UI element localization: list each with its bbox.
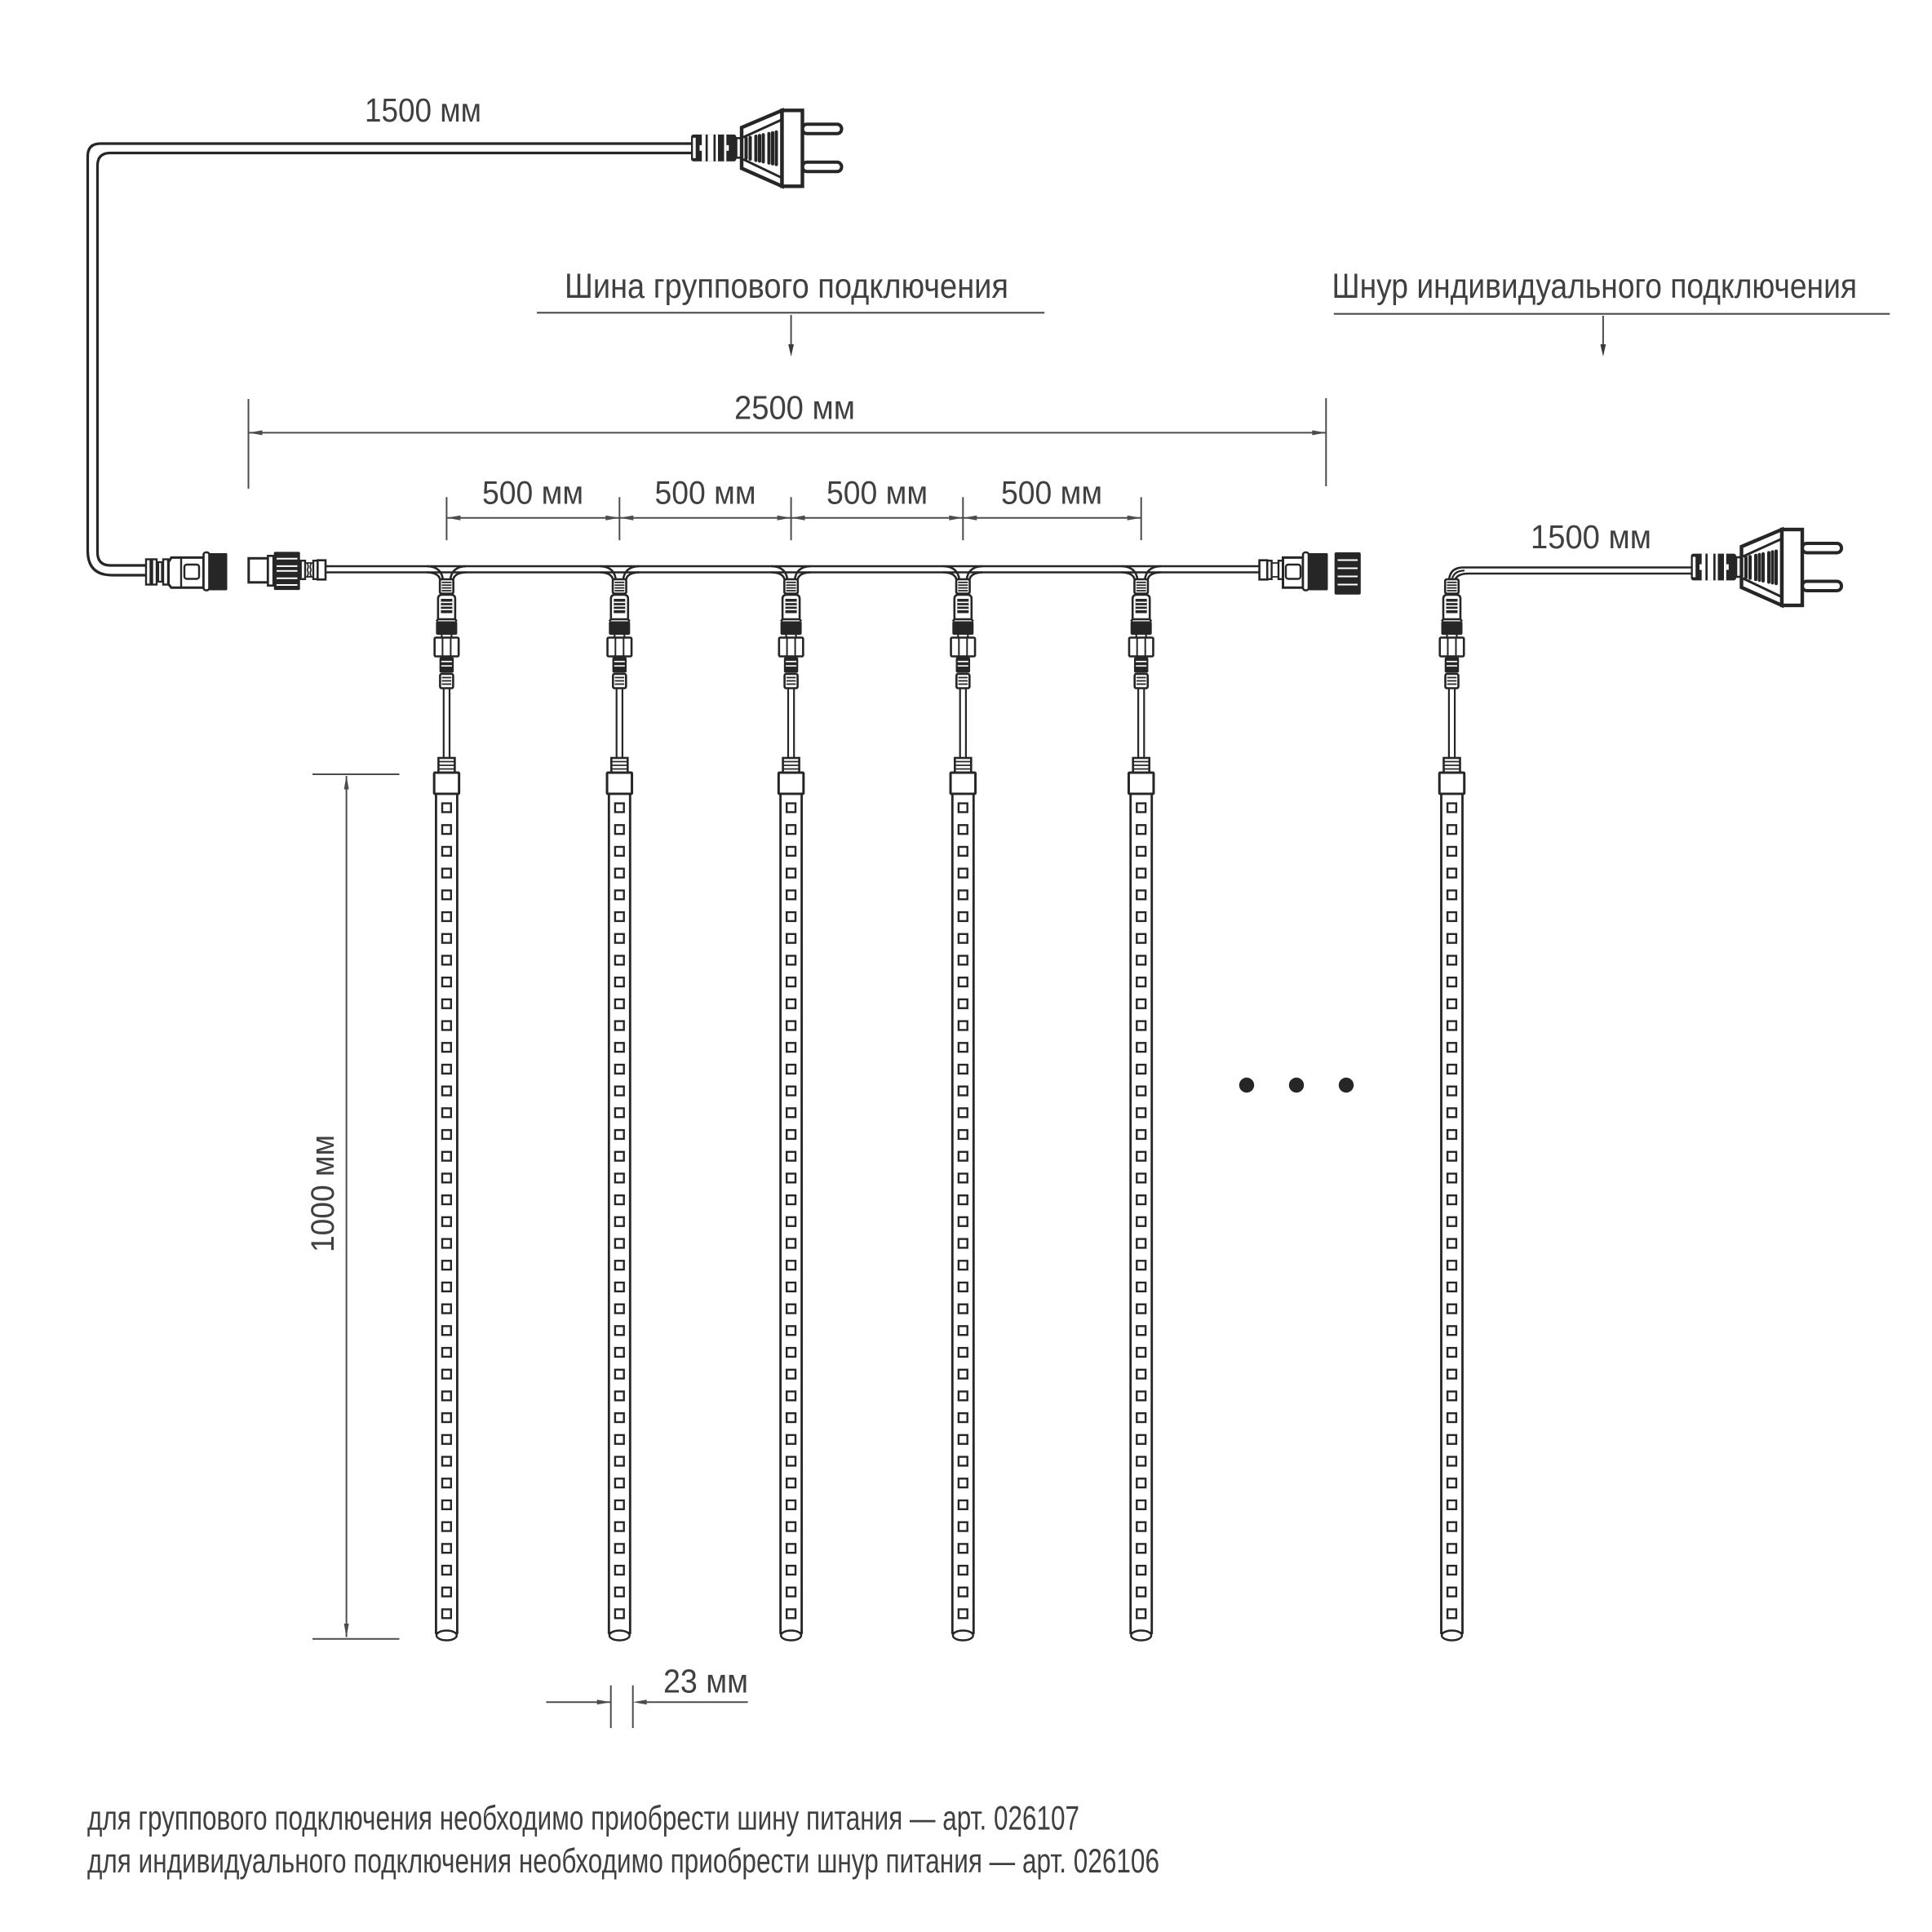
svg-text:1000 мм: 1000 мм	[305, 1135, 341, 1252]
svg-text:500 мм: 500 мм	[1001, 476, 1102, 512]
svg-text:1500 мм: 1500 мм	[1531, 518, 1651, 556]
svg-text:500 мм: 500 мм	[655, 476, 756, 512]
svg-text:Шина группового подключения: Шина группового подключения	[565, 268, 1008, 306]
svg-text:Шнур индивидуального подключен: Шнур индивидуального подключения	[1332, 268, 1858, 306]
svg-text:500 мм: 500 мм	[826, 476, 928, 512]
svg-text:для группового подключения нео: для группового подключения необходимо пр…	[87, 1799, 1079, 1837]
svg-text:500 мм: 500 мм	[482, 476, 583, 512]
svg-text:2500 мм: 2500 мм	[734, 389, 855, 427]
svg-text:для индивидуального подключени: для индивидуального подключения необходи…	[87, 1841, 1159, 1880]
svg-text:1500 мм: 1500 мм	[365, 91, 481, 129]
svg-text:23 мм: 23 мм	[663, 1663, 748, 1700]
